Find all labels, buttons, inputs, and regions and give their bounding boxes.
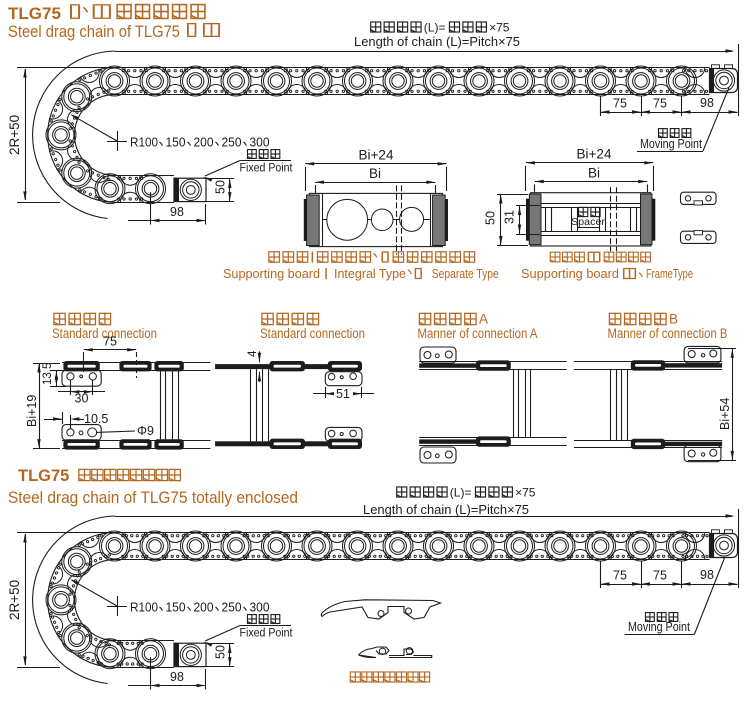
- svg-text:200: 200: [194, 136, 214, 150]
- svg-text:Steel drag chain of TLG75 tota: Steel drag chain of TLG75 totally enclos…: [8, 488, 298, 507]
- svg-text:31: 31: [503, 210, 517, 224]
- svg-text:98: 98: [170, 670, 184, 684]
- svg-text:Bi+24: Bi+24: [359, 148, 394, 163]
- svg-text:75: 75: [613, 97, 627, 111]
- svg-text:(L)=: (L)=: [424, 21, 446, 35]
- svg-text:Moving Point: Moving Point: [628, 620, 690, 634]
- svg-text:300: 300: [250, 601, 270, 615]
- svg-text:98: 98: [700, 96, 714, 110]
- svg-text:13.5: 13.5: [42, 363, 54, 385]
- svg-text:Integral Type: Integral Type: [334, 266, 406, 281]
- svg-text:200: 200: [194, 601, 214, 615]
- svg-text:R100: R100: [130, 136, 158, 150]
- svg-text:75: 75: [653, 97, 667, 111]
- svg-text:Spacer: Spacer: [571, 216, 606, 228]
- svg-text:250: 250: [222, 601, 242, 615]
- svg-text:Moving Point: Moving Point: [640, 137, 702, 151]
- svg-text:250: 250: [222, 136, 242, 150]
- svg-text:Bi+19: Bi+19: [25, 395, 39, 427]
- svg-text:50: 50: [214, 645, 228, 659]
- svg-text:×75: ×75: [515, 486, 536, 500]
- svg-text:2R+50: 2R+50: [7, 580, 22, 620]
- svg-text:Bi+54: Bi+54: [718, 398, 732, 430]
- svg-text:98: 98: [700, 568, 714, 582]
- svg-text:Separate Type: Separate Type: [432, 266, 499, 281]
- svg-text:Fixed Point: Fixed Point: [240, 163, 294, 175]
- svg-text:A: A: [479, 312, 488, 327]
- svg-text:Length of chain (L)=Pitch×75: Length of chain (L)=Pitch×75: [363, 503, 529, 517]
- svg-text:Manner of connection A: Manner of connection A: [418, 326, 538, 341]
- svg-text:TLG75: TLG75: [18, 467, 69, 485]
- svg-text:50: 50: [484, 211, 498, 225]
- svg-text:50: 50: [214, 180, 228, 194]
- svg-text:Supporting board: Supporting board: [521, 266, 619, 281]
- svg-text:Supporting board: Supporting board: [223, 266, 320, 281]
- svg-text:10.5: 10.5: [84, 412, 108, 426]
- svg-text:Length of chain (L)=Pitch×75: Length of chain (L)=Pitch×75: [354, 35, 520, 49]
- svg-text:98: 98: [170, 205, 184, 219]
- svg-text:30: 30: [75, 392, 89, 406]
- svg-text:Fixed Point: Fixed Point: [240, 628, 294, 640]
- svg-text:75: 75: [653, 569, 667, 583]
- svg-text:FrameType: FrameType: [646, 266, 693, 281]
- svg-text:51: 51: [336, 387, 350, 401]
- svg-text:Steel drag chain of TLG75: Steel drag chain of TLG75: [8, 22, 180, 41]
- svg-text:B: B: [669, 312, 678, 327]
- svg-text:Φ9: Φ9: [137, 424, 154, 438]
- svg-text:Bi+24: Bi+24: [577, 147, 612, 162]
- svg-text:300: 300: [250, 136, 270, 150]
- svg-text:Bi: Bi: [369, 166, 381, 181]
- svg-text:R100: R100: [130, 601, 158, 615]
- svg-text:Bi: Bi: [588, 166, 600, 181]
- svg-text:Manner of connection B: Manner of connection B: [608, 326, 728, 341]
- svg-text:TLG75: TLG75: [8, 4, 61, 23]
- svg-text:×75: ×75: [489, 21, 510, 35]
- svg-text:2R+50: 2R+50: [7, 115, 22, 155]
- svg-text:150: 150: [166, 136, 186, 150]
- svg-text:150: 150: [166, 601, 186, 615]
- svg-text:75: 75: [613, 569, 627, 583]
- svg-text:75: 75: [103, 335, 117, 349]
- svg-text:Standard connection: Standard connection: [260, 326, 365, 341]
- svg-text:(L)=: (L)=: [450, 486, 472, 500]
- svg-text:4: 4: [247, 350, 259, 357]
